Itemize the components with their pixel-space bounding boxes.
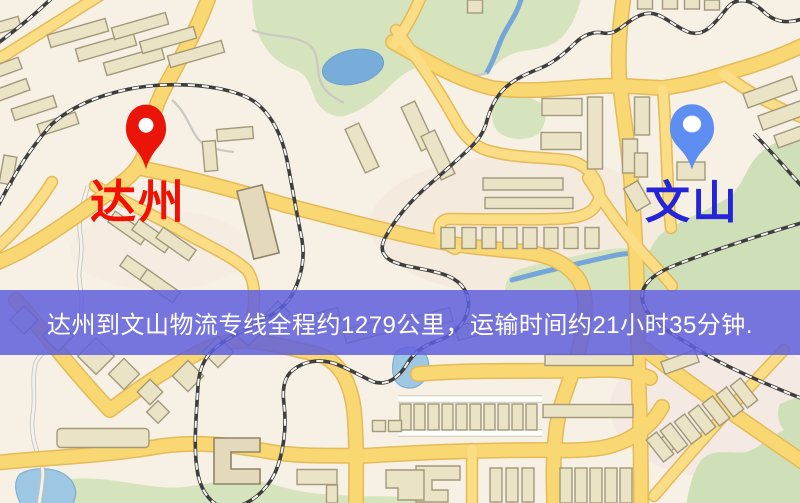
origin-label: 达州 <box>90 180 186 226</box>
map-artwork <box>0 0 800 503</box>
route-summary-banner: 达州到文山物流专线全程约1279公里，运输时间约21小时35分钟. <box>0 290 800 355</box>
destination-label: 文山 <box>645 181 739 226</box>
map-canvas[interactable]: 达州 文山 达州到文山物流专线全程约1279公里，运输时间约21小时35分钟. <box>0 0 800 503</box>
route-summary-text: 达州到文山物流专线全程约1279公里，运输时间约21小时35分钟. <box>47 305 753 340</box>
